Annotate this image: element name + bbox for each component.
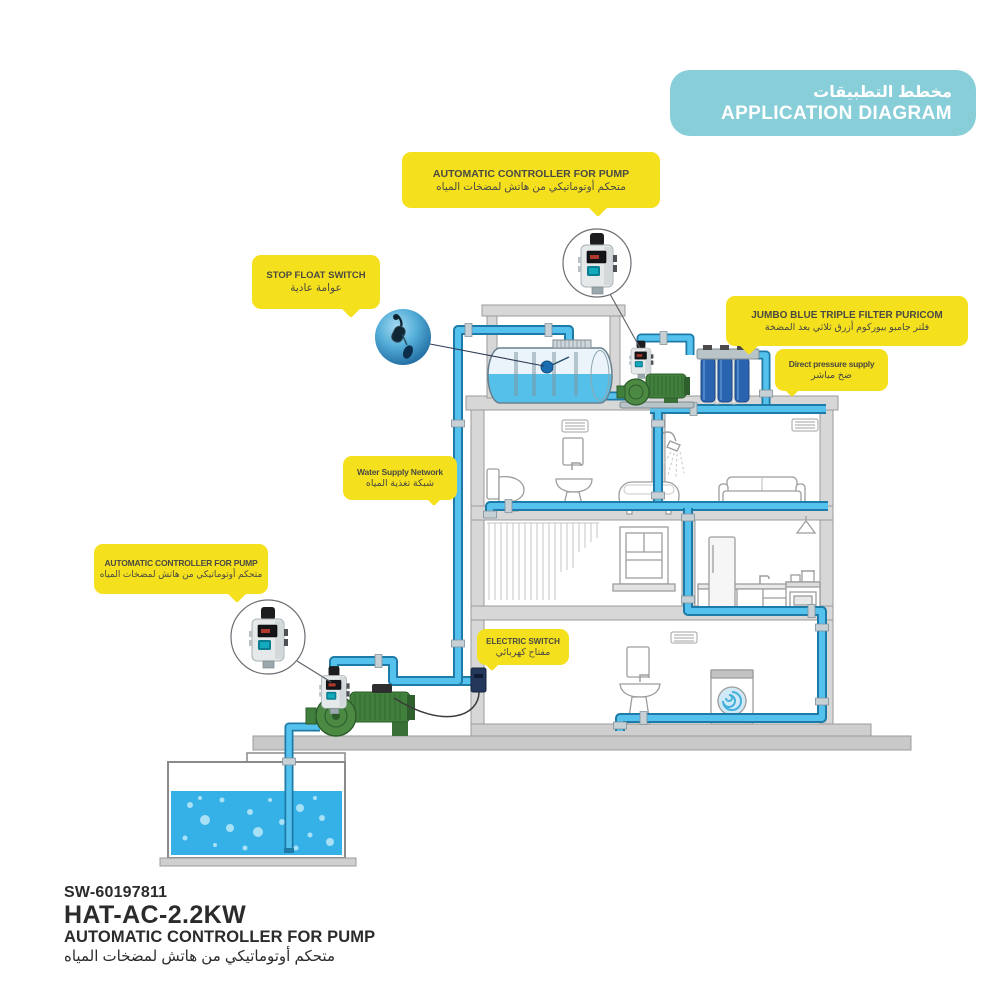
controller-detail-circle-left: [231, 600, 305, 674]
vent-grille: [671, 632, 697, 643]
wall-mirror: [563, 438, 583, 465]
callout-text-ar: فلتر جامبو بيوركوم أزرق ثلاثي بعد المضخة: [765, 322, 929, 333]
filter-cartridges: [701, 358, 749, 402]
pointer-line: [297, 661, 331, 682]
window: [613, 527, 675, 591]
banner-title-arabic: مخطط التطبيقات: [813, 82, 952, 102]
callout-water-network: Water Supply Network شبكة تغذية المياه: [343, 456, 457, 500]
wall-mirror-ground: [627, 647, 649, 677]
callout-roof-controller: AUTOMATIC CONTROLLER FOR PUMP متحكم أوتو…: [402, 152, 660, 208]
callout-text-ar: مفتاح كهربائي: [496, 647, 551, 658]
top-floor-pipe: [490, 412, 828, 518]
callout-text-en: ELECTRIC SWITCH: [486, 637, 560, 646]
fridge: [709, 537, 735, 612]
callout-jumbo-filter: JUMBO BLUE TRIPLE FILTER PURICOM فلتر جا…: [726, 296, 968, 346]
vent-grille: [792, 419, 818, 431]
vent-grille: [562, 420, 588, 432]
callout-text-ar: متحكم أوتوماتيكي من هاتش لمضخات المياه: [100, 569, 263, 580]
callout-text-ar: ضخ مباشر: [811, 370, 852, 381]
banner-title-english: APPLICATION DIAGRAM: [721, 103, 952, 125]
callout-text-ar: عوامة عادية: [290, 282, 341, 294]
callout-text-ar: شبكة تغذية المياه: [366, 478, 434, 489]
application-diagram-poster: مخطط التطبيقات APPLICATION DIAGRAM AUTOM…: [0, 0, 1000, 1000]
product-name-english: AUTOMATIC CONTROLLER FOR PUMP: [64, 928, 375, 947]
callout-text-en: STOP FLOAT SWITCH: [266, 270, 365, 281]
ground-pump-controller: [319, 666, 349, 714]
house-floor-slab: [471, 724, 871, 736]
callout-text-en: AUTOMATIC CONTROLLER FOR PUMP: [104, 558, 257, 568]
callout-text-ar: متحكم أوتوماتيكي من هاتش لمضخات المياه: [436, 181, 626, 193]
controller-detail-circle-top: [563, 229, 631, 297]
callout-direct-pressure: Direct pressure supply ضخ مباشر: [775, 349, 888, 391]
callout-ground-controller: AUTOMATIC CONTROLLER FOR PUMP متحكم أوتو…: [94, 544, 268, 594]
callout-text-en: Direct pressure supply: [789, 359, 875, 369]
roof-pump-controller: [629, 341, 653, 379]
product-info: SW-60197811 HAT-AC-2.2KW AUTOMATIC CONTR…: [64, 884, 375, 965]
product-sku: SW-60197811: [64, 884, 375, 902]
callout-stop-float-switch: STOP FLOAT SWITCH عوامة عادية: [252, 255, 380, 309]
ground-slab: [253, 736, 911, 750]
cookware: [791, 571, 815, 582]
tank-base: [160, 858, 356, 866]
tank-inlet-flange: [553, 340, 591, 348]
underground-tank: [160, 753, 356, 866]
callout-text-en: AUTOMATIC CONTROLLER FOR PUMP: [433, 168, 629, 180]
curtain: [487, 523, 599, 600]
kitchen-faucet: [760, 576, 769, 584]
callout-text-en: Water Supply Network: [357, 467, 443, 477]
product-model: HAT-AC-2.2KW: [64, 902, 375, 928]
product-name-arabic: متحكم أوتوماتيكي من هاتش لمضخات المياه: [64, 947, 375, 965]
callout-text-en: JUMBO BLUE TRIPLE FILTER PURICOM: [751, 310, 942, 321]
callout-electric-switch: ELECTRIC SWITCH مفتاح كهربائي: [477, 629, 569, 665]
tank-water: [171, 791, 342, 855]
banner: مخطط التطبيقات APPLICATION DIAGRAM: [670, 70, 976, 136]
pump-terminal-box: [372, 684, 392, 693]
float-switch-photo: [375, 309, 431, 365]
window-sill: [613, 584, 675, 591]
roof-water-tank: [480, 340, 620, 408]
roof-pump: [617, 374, 694, 408]
diagram-canvas: [0, 0, 1000, 1000]
electric-switch: [471, 668, 486, 692]
